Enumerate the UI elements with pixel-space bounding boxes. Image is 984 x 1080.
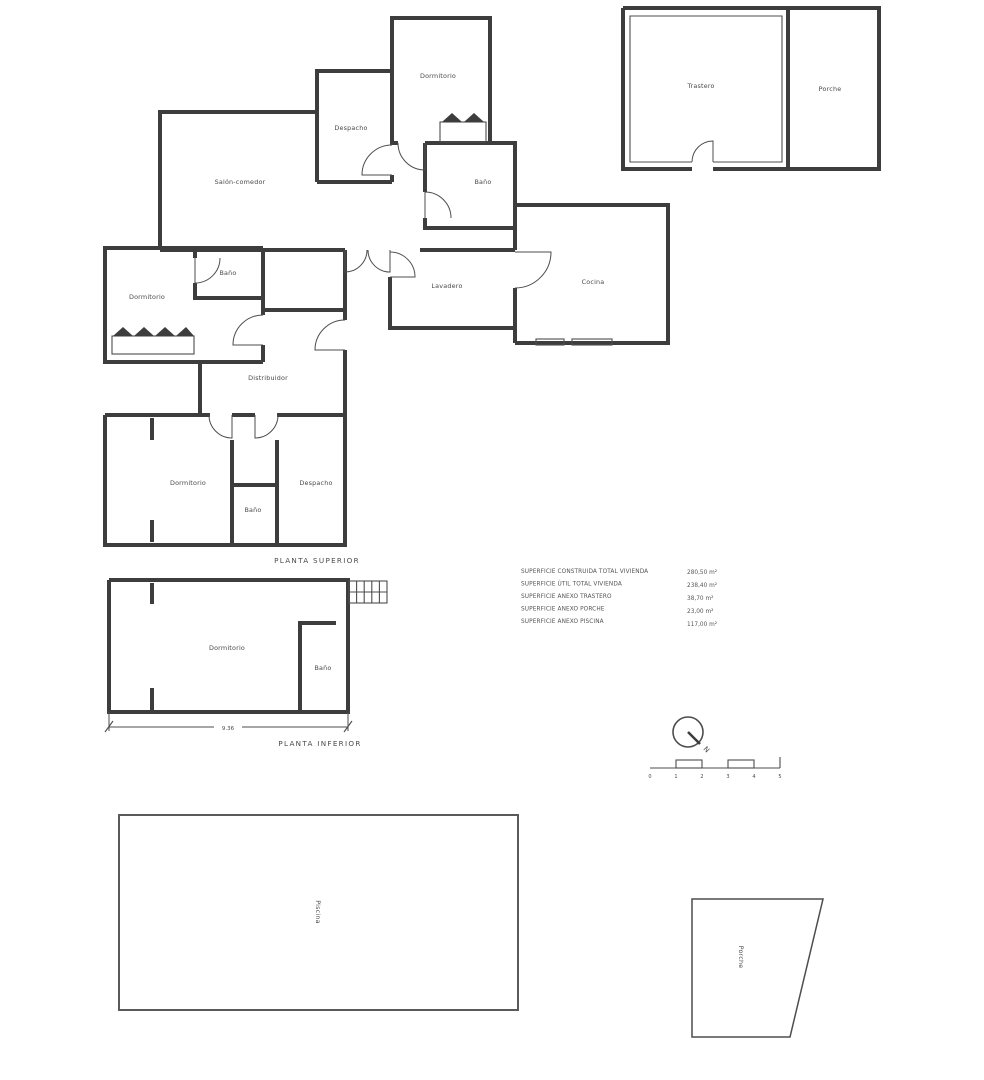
room-label-bano-left: Baño xyxy=(219,269,236,277)
table-row-value: 238,40 m² xyxy=(687,582,717,589)
room-label-bano-bottom: Baño xyxy=(244,506,261,514)
door-arc-bano-left xyxy=(195,258,220,283)
room-label-lavadero: Lavadero xyxy=(431,282,462,290)
scale-tick: 4 xyxy=(752,774,755,780)
table-row-value: 23,00 m² xyxy=(687,608,713,615)
room-label-despacho-bottom: Despacho xyxy=(299,479,332,487)
site-label-porche: Porche xyxy=(737,946,745,969)
table-row-value: 117,00 m² xyxy=(687,621,717,628)
room-label-salon-comedor: Salón-comedor xyxy=(215,178,266,186)
north-arrow-icon: N xyxy=(673,717,711,754)
room-label-dormitorio-top: Dormitorio xyxy=(420,72,456,80)
scale-tick: 2 xyxy=(700,774,703,780)
trastero-door-arc xyxy=(692,141,713,162)
table-row-label: SUPERFICIE ANEXO PORCHE xyxy=(521,607,605,613)
door-arc-cocina xyxy=(515,252,551,288)
room-label-cocina: Cocina xyxy=(582,278,605,286)
scale-tick: 0 xyxy=(648,774,651,780)
scale-tick: 5 xyxy=(778,774,781,780)
table-row-value: 38,70 m² xyxy=(687,595,713,602)
site-label-piscina: Piscina xyxy=(314,900,322,923)
north-label: N xyxy=(702,745,711,754)
table-row-label: SUPERFICIE CONSTRUIDA TOTAL VIVIENDA xyxy=(521,569,648,575)
wardrobe-top-dormitorio xyxy=(440,113,486,142)
room-label-bano-inferior: Baño xyxy=(314,664,331,672)
room-label-despacho-top: Despacho xyxy=(334,124,367,132)
room-label-trastero: Trastero xyxy=(686,82,714,90)
areas-table: SUPERFICIE CONSTRUIDA TOTAL VIVIENDA 280… xyxy=(521,569,717,628)
door-swing-arcs xyxy=(195,143,551,438)
door-arc-dormitorio-bottom xyxy=(209,415,232,438)
door-arc-salon-left xyxy=(345,250,367,272)
dimension-value: 9.36 xyxy=(222,726,235,732)
table-row-label: SUPERFICIE ÚTIL TOTAL VIVIENDA xyxy=(521,581,622,588)
door-arc-lavadero xyxy=(390,252,415,277)
scale-bar: 0 1 2 3 4 5 xyxy=(648,757,781,780)
lower-floor-plan-walls xyxy=(105,580,387,732)
lower-plan-title: PLANTA INFERIOR xyxy=(278,739,361,748)
door-arc-distribuidor xyxy=(315,320,345,350)
door-arc-dormitorio-top xyxy=(398,143,425,170)
table-row-value: 280,50 m² xyxy=(687,569,717,576)
door-arc-bano-top xyxy=(425,192,451,218)
door-arc-despacho-top xyxy=(362,145,392,175)
door-arc-dormitorio-left xyxy=(233,315,263,345)
room-label-distribuidor: Distribuidor xyxy=(248,374,288,382)
scale-tick: 3 xyxy=(726,774,729,780)
wardrobe-left-dormitorio xyxy=(112,327,194,354)
door-arc-despacho-bottom xyxy=(255,415,278,438)
piscina-outline: Piscina xyxy=(119,815,518,1010)
room-label-dormitorio-bottom: Dormitorio xyxy=(170,479,206,487)
scale-tick: 1 xyxy=(674,774,677,780)
floor-plan-drawing: Dormitorio Despacho Salón-comedor Baño C… xyxy=(0,0,984,1080)
floor-plan-sheet: Dormitorio Despacho Salón-comedor Baño C… xyxy=(0,0,984,1080)
door-arc-salon-right xyxy=(368,250,390,272)
room-label-bano-top: Baño xyxy=(474,178,491,186)
room-label-dormitorio-left: Dormitorio xyxy=(129,293,165,301)
room-label-porche-annex: Porche xyxy=(819,85,842,93)
porche-site-outline: Porche xyxy=(692,899,823,1037)
upper-plan-title: PLANTA SUPERIOR xyxy=(274,556,360,565)
room-label-dormitorio-inferior: Dormitorio xyxy=(209,644,245,652)
table-row-label: SUPERFICIE ANEXO PISCINA xyxy=(521,619,604,625)
table-row-label: SUPERFICIE ANEXO TRASTERO xyxy=(521,594,612,600)
stairs-icon xyxy=(349,581,387,603)
